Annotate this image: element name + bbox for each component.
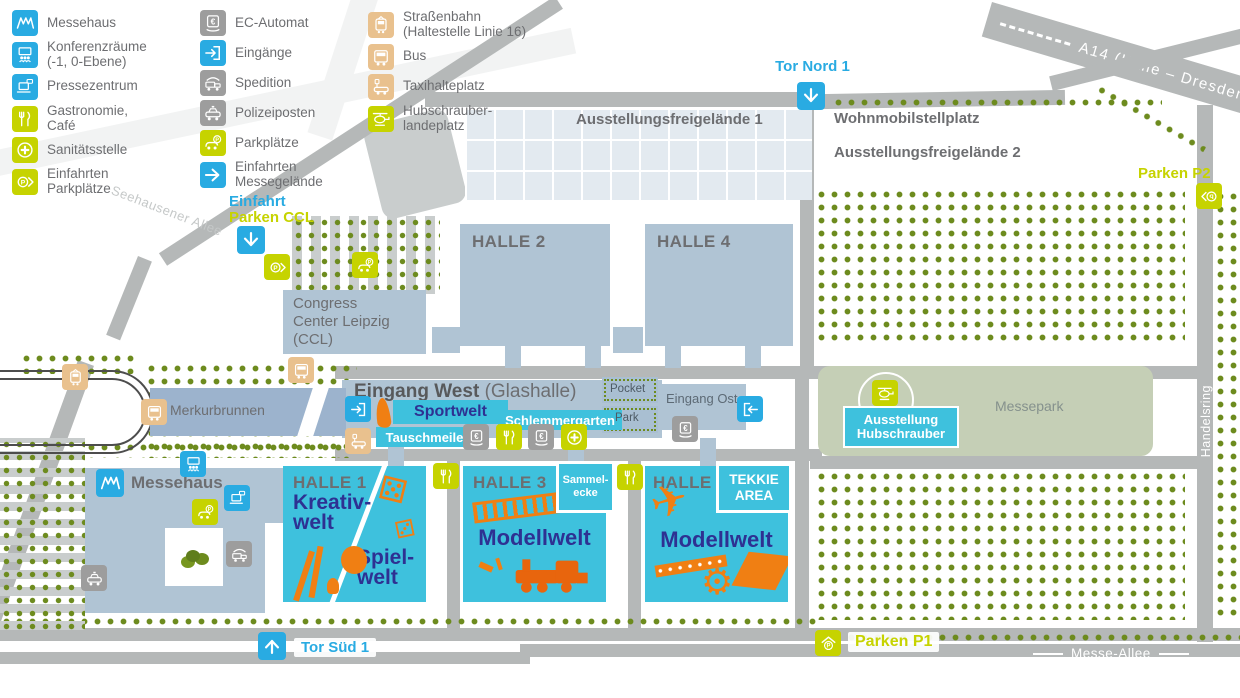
tauschmeile-chip: Tauschmeile xyxy=(376,427,473,447)
ec-automat-map-icon xyxy=(672,416,698,442)
kreativwelt-label: Kreativ- welt xyxy=(293,493,371,533)
debris-doodle xyxy=(495,558,503,571)
parkplaetze-map-icon xyxy=(192,499,218,525)
eingang-west-entry-icon xyxy=(345,396,371,422)
polizeiposten-icon xyxy=(200,100,226,126)
tor-nord-label: Tor Nord 1 xyxy=(760,58,865,75)
konferenzraeume-map-icon xyxy=(180,451,206,477)
einfahrt-label: Einfahrt xyxy=(229,193,286,210)
tor-sued-label: Tor Süd 1 xyxy=(294,638,376,657)
bus-icon xyxy=(368,44,394,70)
gastronomie-map-icon xyxy=(433,463,459,489)
tor-sued-arrow-icon xyxy=(258,632,286,660)
parken-ccl-label: Parken CCL xyxy=(229,209,314,226)
polizeiposten-map-icon xyxy=(81,565,107,591)
bus-map-icon xyxy=(141,399,167,425)
messe-leipzig-site-map: A14 (Halle – Dresden) Seehausener Allee … xyxy=(0,0,1240,698)
halle3-label: HALLE 3 xyxy=(473,473,547,493)
eingang-west-bold: Eingang West xyxy=(354,381,479,402)
legend-item-pressezentrum: Pressezentrum xyxy=(12,74,147,100)
eingaenge-icon xyxy=(200,40,226,66)
strassenbahn-icon xyxy=(368,12,394,38)
tree-block-southeast xyxy=(815,470,1185,620)
hall-connector-stub xyxy=(505,346,521,368)
tree-strip-right-edge xyxy=(1214,190,1240,620)
balloon-doodle xyxy=(341,546,367,574)
parkplaetze-icon xyxy=(200,130,226,156)
legend-item-einfahrten-parkplaetze: Einfahrten Parkplätze xyxy=(12,167,147,197)
legend-item-spedition: Spedition xyxy=(200,70,323,96)
train-doodle xyxy=(511,554,595,594)
pawn-doodle xyxy=(327,578,339,594)
dice-doodle: ⚂ xyxy=(393,516,417,543)
hall-connector-stub xyxy=(665,346,681,368)
gastronomie-map-icon xyxy=(496,424,522,450)
legend-item-sanitaetsstelle: Sanitätsstelle xyxy=(12,137,147,163)
konferenzraeume-icon xyxy=(12,42,38,68)
ec-automat-map-icon xyxy=(463,424,489,450)
freigelaende2-label: Ausstellungsfreigelände 2 xyxy=(834,144,1021,161)
hubschrauber-map-icon xyxy=(872,380,898,406)
legend-column-3: Straßenbahn (Haltestelle Linie 16) Bus T… xyxy=(368,10,526,133)
halle2-label: HALLE 2 xyxy=(472,232,546,251)
street-label-handelsring: Handelsring xyxy=(1199,385,1213,457)
modellwelt5-label: Modellwelt xyxy=(645,530,788,551)
eingang-ost-entry-icon xyxy=(737,396,763,422)
courtyard-bush xyxy=(186,550,200,562)
road-dash xyxy=(1033,653,1063,655)
halle1-label: HALLE 1 xyxy=(293,473,367,493)
eingang-ost-label: Eingang Ost xyxy=(666,391,738,406)
hall-connector xyxy=(432,327,460,353)
freigelaende1-label: Ausstellungsfreigelände 1 xyxy=(576,111,763,128)
messehaus-map-icon xyxy=(96,469,124,497)
hall-connector-stub xyxy=(585,346,601,368)
modellwelt3-label: Modellwelt xyxy=(463,528,606,549)
sanitaetsstelle-map-icon xyxy=(561,424,587,450)
halle2-building: HALLE 2 xyxy=(460,224,610,346)
ausstellung-hubschrauber-chip: Ausstellung Hubschrauber xyxy=(843,406,959,448)
einfahrten-messegelaende-icon xyxy=(200,162,226,188)
parking-west xyxy=(0,438,85,630)
parken-p1-label: Parken P1 xyxy=(848,632,939,652)
tor-nord-arrow-icon xyxy=(797,82,825,110)
spedition-icon xyxy=(200,70,226,96)
parken-p2-icon xyxy=(1196,183,1222,209)
messepark-label: Messepark xyxy=(995,398,1063,414)
legend-column-2: EC-Automat Eingänge Spedition Polizeipos… xyxy=(200,10,323,190)
sportwelt-chip: Sportwelt xyxy=(393,400,508,424)
parken-p2-label: Parken P2 xyxy=(1138,165,1211,182)
halle4-label: HALLE 4 xyxy=(657,232,731,251)
ccl-building: Congress Center Leipzig (CCL) xyxy=(283,290,426,354)
pressezentrum-map-icon xyxy=(224,485,250,511)
legend-item-strassenbahn: Straßenbahn (Haltestelle Linie 16) xyxy=(368,10,526,40)
glashalle-connector xyxy=(700,438,716,466)
spedition-map-icon xyxy=(226,541,252,567)
ec-automat-map-icon xyxy=(528,424,554,450)
legend-item-ec-automat: EC-Automat xyxy=(200,10,323,36)
legend-item-eingaenge: Eingänge xyxy=(200,40,323,66)
legend-item-einfahrten-messegelaende: Einfahrten Messegelände xyxy=(200,160,323,190)
tree-block-northeast xyxy=(815,188,1185,345)
tekkie-area-chip: TEKKIE AREA xyxy=(716,463,792,513)
halle4-building: HALLE 4 xyxy=(645,224,793,346)
halle1-area: HALLE 1 Kreativ- welt Spiel- welt ⚄ ⚂ xyxy=(283,466,426,602)
legend-item-parkplaetze: Parkplätze xyxy=(200,130,323,156)
hubschrauberlandeplatz-icon xyxy=(368,106,394,132)
park-label: Park xyxy=(615,412,639,424)
debris-doodle xyxy=(478,561,493,572)
road-dash xyxy=(1159,653,1189,655)
road-messepark-south xyxy=(810,456,1206,469)
hall-connector xyxy=(613,327,643,353)
einfahrten-parkplaetze-icon xyxy=(12,169,38,195)
road-east-of-halle5 xyxy=(795,379,809,630)
parkplaetze-map-icon xyxy=(352,252,378,278)
legend-item-polizeiposten: Polizeiposten xyxy=(200,100,323,126)
legend-item-bus: Bus xyxy=(368,44,526,70)
mat-doodle xyxy=(731,552,788,591)
eingang-west-light: (Glashalle) xyxy=(485,381,577,402)
sammelecke-chip: Sammel- ecke xyxy=(556,461,615,513)
taxi-map-icon xyxy=(345,428,371,454)
strassenbahn-map-icon xyxy=(62,364,88,390)
pressezentrum-icon xyxy=(12,74,38,100)
legend-item-gastronomie: Gastronomie, Café xyxy=(12,104,147,134)
ec-automat-icon xyxy=(200,10,226,36)
legend-item-messehaus: Messehaus xyxy=(12,10,147,36)
legend-item-taxihalteplatz: Taxihalteplatz xyxy=(368,74,526,100)
gastronomie-map-icon xyxy=(617,464,643,490)
einfahrt-ccl-arrow-icon xyxy=(237,226,265,254)
messehaus-label: Messehaus xyxy=(131,473,223,493)
hall-connector-stub xyxy=(745,346,761,368)
bus-map-icon xyxy=(288,357,314,383)
street-label-messe-allee: Messe-Allee xyxy=(1025,646,1197,661)
merkurbrunnen-label: Merkurbrunnen xyxy=(170,402,265,418)
messehaus-icon xyxy=(12,10,38,36)
wohnmobilstellplatz-label: Wohnmobilstellplatz xyxy=(834,110,980,127)
tree-row-bottom xyxy=(0,615,820,629)
einfahrt-parkplaetze-map-icon xyxy=(264,254,290,280)
legend-item-konferenzraeume: Konferenzräume (-1, 0-Ebene) xyxy=(12,40,147,70)
ccl-label: Congress Center Leipzig (CCL) xyxy=(293,295,390,348)
taxihalteplatz-icon xyxy=(368,74,394,100)
sanitaetsstelle-icon xyxy=(12,137,38,163)
dice-doodle: ⚄ xyxy=(376,471,411,509)
parken-p1-icon xyxy=(815,630,841,656)
gear-doodle: ⚙ xyxy=(701,564,733,600)
road-seehausener-branch xyxy=(106,256,152,340)
legend-item-hubschrauberlandeplatz: Hubschrauber- landeplatz xyxy=(368,104,526,134)
pocket-label: Pocket xyxy=(610,383,645,395)
gastronomie-icon xyxy=(12,106,38,132)
legend-column-1: Messehaus Konferenzräume (-1, 0-Ebene) P… xyxy=(12,10,147,197)
